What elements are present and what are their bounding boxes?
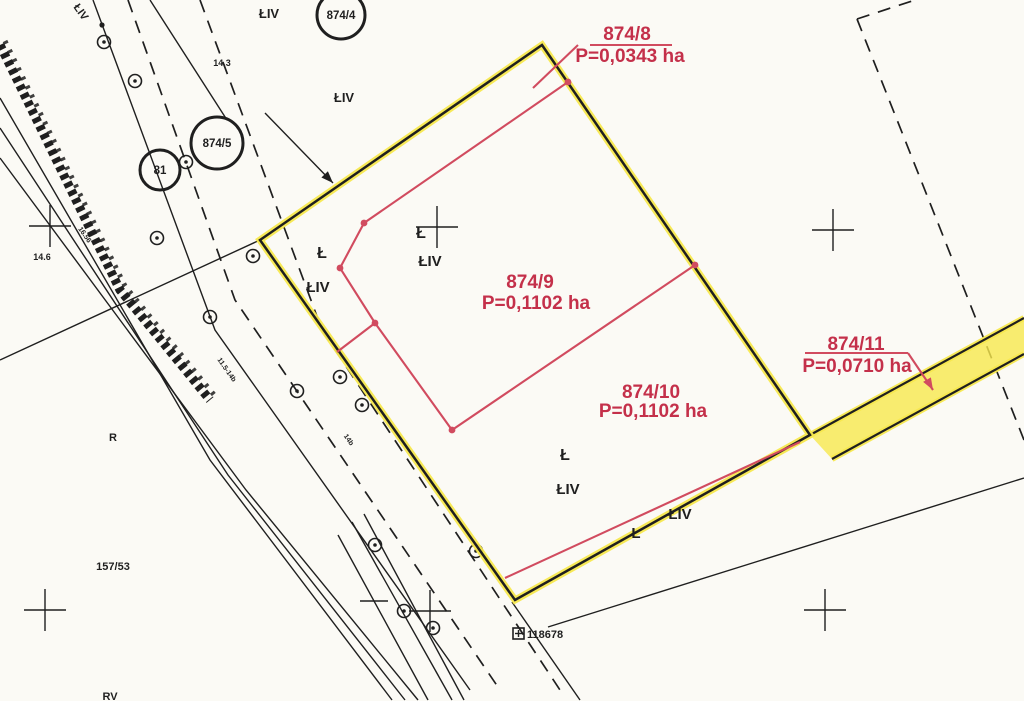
tree-dot xyxy=(431,626,435,630)
survey-point-dot-0 xyxy=(99,22,104,27)
landuse-l-left: Ł xyxy=(317,245,327,262)
cadastral-map-canvas: 874/4874/581ŁIV14.3ŁIVŁŁIVŁŁIVŁŁIVŁIVŁR1… xyxy=(0,0,1024,701)
landuse-liv-center: ŁIV xyxy=(418,253,441,270)
landuse-rv: RV xyxy=(102,691,118,701)
tree-dot xyxy=(102,40,106,44)
tree-dot xyxy=(184,160,188,164)
tree-dot xyxy=(338,375,342,379)
red-vertex-dot-1 xyxy=(361,220,368,227)
parcel-874-8-number: 874/8 xyxy=(603,24,651,45)
tree-dot xyxy=(373,543,377,547)
landuse-liv-top: ŁIV xyxy=(259,6,280,21)
tree-dot xyxy=(155,236,159,240)
parcel-874-11-number: 874/11 xyxy=(827,334,884,355)
parcel-874-8-area: P=0,0343 ha xyxy=(575,46,685,67)
landuse-l-cross: Ł xyxy=(416,225,426,242)
landuse-r: R xyxy=(109,432,117,444)
parcel-circle-874-4-text: 874/4 xyxy=(327,10,356,22)
tree-dot xyxy=(360,403,364,407)
parcel-874-9-number: 874/9 xyxy=(506,272,554,293)
parcel-874-10-number: 874/10 xyxy=(622,382,680,403)
tree-dot xyxy=(208,315,212,319)
cadastral-map-sheet: 874/4874/581ŁIV14.3ŁIVŁŁIVŁŁIVŁŁIVŁIVŁR1… xyxy=(0,0,1024,701)
tree-dot xyxy=(295,389,299,393)
red-vertex-dot-2 xyxy=(337,265,344,272)
parcel-874-10-area: P=0,1102 ha xyxy=(599,401,708,422)
landuse-liv-left: ŁIV xyxy=(306,279,329,296)
tree-dot xyxy=(402,609,406,613)
tree-dot xyxy=(251,254,255,258)
parcel-874-9-area: P=0,1102 ha xyxy=(482,293,591,314)
parcel-874-11-area: P=0,0710 ha xyxy=(802,356,912,377)
red-vertex-dot-5 xyxy=(692,262,699,269)
parcel-circle-81-text: 81 xyxy=(154,165,167,177)
parcel-circle-874-5-text: 874/5 xyxy=(203,138,232,150)
parcel-157-53: 157/53 xyxy=(96,561,130,573)
landuse-liv-bottom: ŁIV xyxy=(556,481,579,498)
red-vertex-dot-3 xyxy=(372,320,379,327)
landuse-l-bottom: Ł xyxy=(560,447,570,464)
red-vertex-dot-4 xyxy=(449,427,456,434)
landuse-l-road: Ł xyxy=(631,525,640,542)
landuse-liv-upper: ŁIV xyxy=(334,90,355,105)
red-vertex-dot-0 xyxy=(565,79,572,86)
landuse-liv-road: ŁIV xyxy=(668,506,691,523)
survey-marker-label: 118678 xyxy=(527,629,563,641)
dim-14-6: 14.6 xyxy=(33,252,51,262)
tree-dot xyxy=(133,79,137,83)
dim-14-3: 14.3 xyxy=(213,58,231,68)
